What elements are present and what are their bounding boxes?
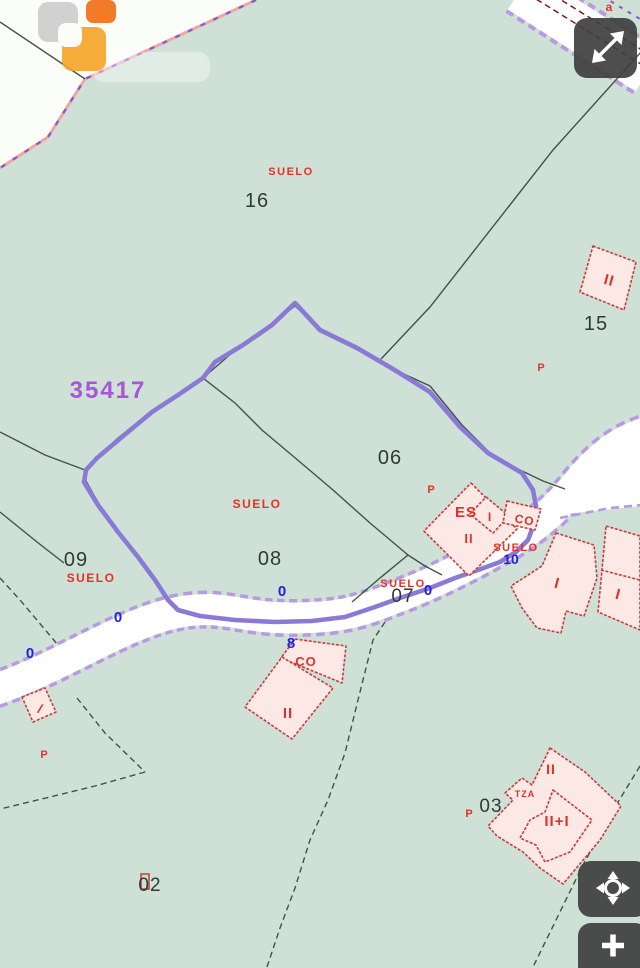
parcel-numbers-label: 03 [479,796,502,817]
parcel-numbers-label: 15 [584,313,608,335]
address-numbers-label: 0 [114,609,122,626]
address-numbers-label: 10 [503,551,519,567]
patio-marks-label: P [40,749,47,761]
building-labels-label: II [464,531,473,546]
road-letter-label: a [606,0,613,14]
address-numbers-label: 0 [26,645,34,662]
parcel-ref-label: 35417 [70,377,147,404]
map-canvas[interactable]: SUELOSUELOSUELOSUELOSUELO 16150608090702… [0,0,640,968]
building-labels-label: II [546,761,556,777]
logo-orange-square [86,0,116,23]
catastro-map-viewer: SUELOSUELOSUELOSUELOSUELO 16150608090702… [0,0,640,968]
address-numbers-label: 8 [287,635,295,652]
building-labels-label: ES [455,504,477,521]
parcel-numbers-label: 16 [245,190,269,212]
patio-marks-label: P [465,808,472,820]
logo-notch [58,23,82,47]
building-labels-label: II [283,705,293,722]
parcel-numbers-label: 08 [258,548,282,570]
pan-button[interactable] [578,861,640,917]
parcel-numbers-label: 02 [138,875,161,896]
suelo-labels-label: SUELO [67,571,116,585]
parcel-numbers-label: 09 [64,549,88,571]
zoom-in-button[interactable] [578,923,640,968]
building-labels-label: II+I [544,813,569,830]
patio-marks-label: P [537,362,544,374]
parcel-numbers-label: 06 [378,447,402,469]
address-numbers-label: 0 [424,582,432,599]
patio-marks-label: P [427,484,434,496]
logo-backplate [92,52,210,82]
expand-button[interactable] [574,18,637,78]
suelo-labels-label: SUELO [268,166,313,178]
address-numbers-label: 0 [278,583,286,600]
building-labels-label: CO [295,654,317,669]
building-labels-label: TZA [515,789,536,799]
parcel-numbers-label: 07 [391,586,414,607]
suelo-labels-label: SUELO [233,497,282,511]
building-labels-label: I [488,510,492,524]
